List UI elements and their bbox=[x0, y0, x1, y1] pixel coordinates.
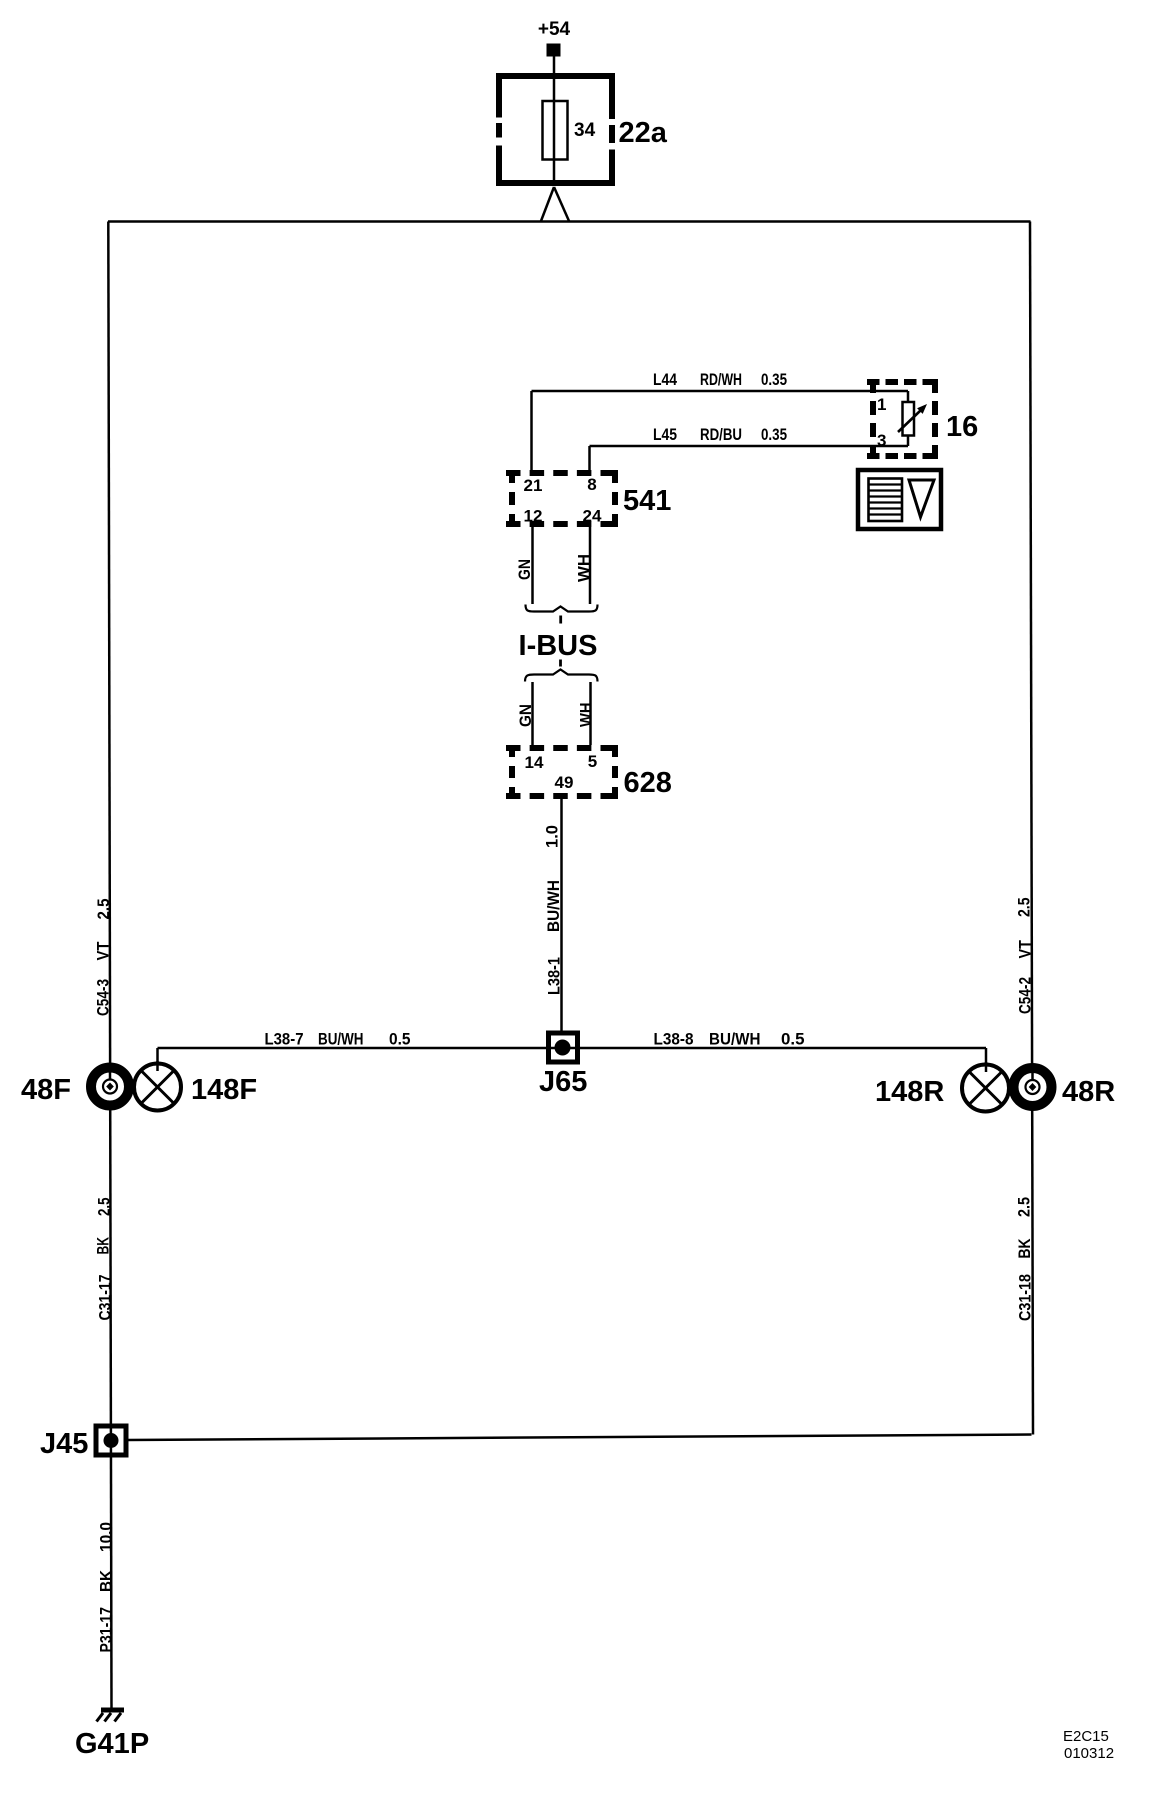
svg-text:148F: 148F bbox=[191, 1074, 257, 1106]
svg-text:BK: BK bbox=[1015, 1238, 1034, 1259]
svg-text:RD/WH: RD/WH bbox=[700, 370, 742, 389]
svg-text:1.0: 1.0 bbox=[543, 825, 562, 848]
svg-text:0.35: 0.35 bbox=[761, 370, 787, 389]
svg-text:8: 8 bbox=[587, 475, 596, 494]
svg-text:RD/BU: RD/BU bbox=[700, 425, 742, 444]
svg-text:16: 16 bbox=[946, 411, 978, 443]
svg-text:12: 12 bbox=[524, 507, 543, 526]
svg-text:14: 14 bbox=[525, 753, 544, 772]
svg-text:BK: BK bbox=[97, 1569, 116, 1592]
svg-text:48R: 48R bbox=[1062, 1076, 1115, 1108]
svg-text:2.5: 2.5 bbox=[1015, 1197, 1034, 1217]
svg-text:WH: WH bbox=[575, 554, 594, 582]
svg-text:WH: WH bbox=[577, 703, 596, 728]
svg-text:L38-7: L38-7 bbox=[265, 1030, 304, 1049]
svg-text:541: 541 bbox=[623, 485, 671, 517]
svg-text:2.5: 2.5 bbox=[94, 899, 113, 920]
svg-text:0.5: 0.5 bbox=[781, 1030, 805, 1049]
svg-text:L45: L45 bbox=[653, 425, 677, 444]
svg-text:+54: +54 bbox=[538, 19, 571, 40]
svg-text:C31-18: C31-18 bbox=[1016, 1274, 1035, 1321]
svg-text:22a: 22a bbox=[619, 117, 668, 149]
svg-text:148R: 148R bbox=[875, 1076, 944, 1108]
svg-text:BU/WH: BU/WH bbox=[544, 880, 563, 932]
svg-text:21: 21 bbox=[524, 476, 543, 495]
svg-text:5: 5 bbox=[588, 752, 597, 771]
svg-text:L38-8: L38-8 bbox=[654, 1030, 694, 1049]
svg-text:C54-3: C54-3 bbox=[94, 979, 113, 1016]
svg-text:J45: J45 bbox=[40, 1428, 88, 1460]
svg-text:1: 1 bbox=[877, 395, 886, 414]
svg-text:2.5: 2.5 bbox=[1015, 898, 1034, 918]
svg-text:10.0: 10.0 bbox=[97, 1522, 116, 1552]
svg-text:2.5: 2.5 bbox=[95, 1198, 114, 1217]
svg-text:J65: J65 bbox=[539, 1066, 587, 1098]
svg-text:34: 34 bbox=[574, 120, 596, 141]
svg-text:VT: VT bbox=[94, 941, 113, 961]
svg-text:C31-17: C31-17 bbox=[96, 1275, 115, 1321]
svg-text:BK: BK bbox=[94, 1236, 113, 1254]
svg-text:3: 3 bbox=[877, 431, 886, 450]
svg-text:BU/WH: BU/WH bbox=[709, 1030, 761, 1049]
svg-text:010312: 010312 bbox=[1064, 1745, 1114, 1762]
svg-text:0.35: 0.35 bbox=[761, 425, 787, 444]
svg-text:48F: 48F bbox=[21, 1074, 71, 1106]
svg-text:G41P: G41P bbox=[75, 1728, 149, 1760]
svg-text:VT: VT bbox=[1016, 939, 1035, 958]
svg-text:BU/WH: BU/WH bbox=[318, 1030, 364, 1049]
svg-text:I-BUS: I-BUS bbox=[519, 630, 598, 662]
svg-text:24: 24 bbox=[583, 507, 602, 526]
svg-text:0.5: 0.5 bbox=[389, 1030, 411, 1049]
svg-text:GN: GN bbox=[515, 559, 534, 580]
svg-text:E2C15: E2C15 bbox=[1063, 1728, 1109, 1745]
svg-text:C54-2: C54-2 bbox=[1016, 977, 1035, 1014]
svg-text:L38-1: L38-1 bbox=[545, 957, 564, 995]
svg-text:L44: L44 bbox=[653, 370, 677, 389]
svg-text:49: 49 bbox=[555, 773, 574, 792]
svg-text:GN: GN bbox=[516, 704, 535, 727]
svg-text:628: 628 bbox=[624, 767, 672, 799]
svg-text:P31-17: P31-17 bbox=[97, 1607, 116, 1653]
